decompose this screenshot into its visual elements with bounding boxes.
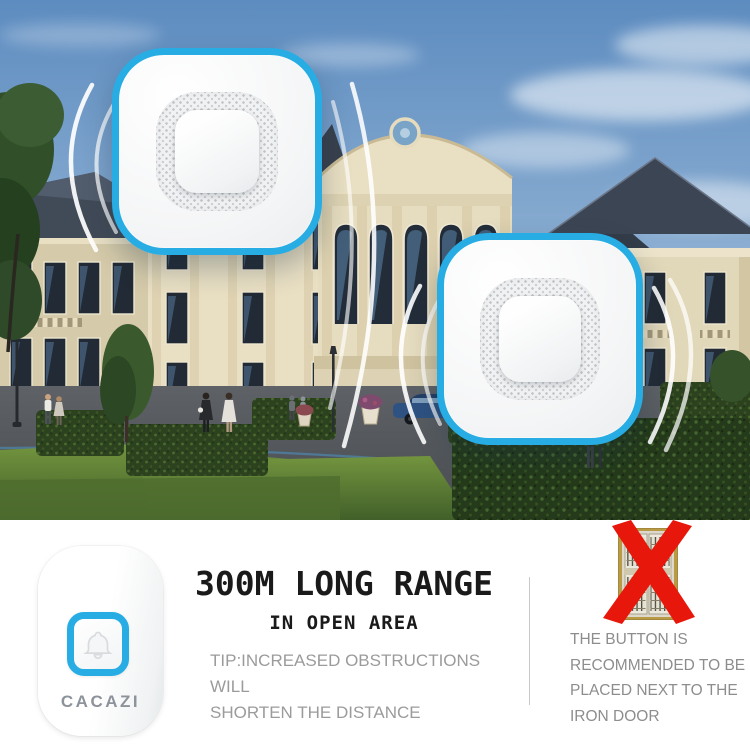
headline-block: 300M LONG RANGE IN OPEN AREA [168, 564, 520, 634]
warning-line: IRON DOOR [570, 704, 748, 730]
red-cross-icon [600, 516, 704, 628]
divider-line [529, 577, 530, 705]
headline-title: 300M LONG RANGE [168, 564, 520, 603]
product-banner: CACAZI 300M LONG RANGE IN OPEN AREA TIP:… [0, 0, 750, 750]
receiver-front-button [499, 296, 582, 381]
tip-text: TIP:INCREASED OBSTRUCTIONS WILL SHORTEN … [210, 648, 500, 726]
doorbell-transmitter: CACAZI [38, 546, 163, 736]
headline-subtitle: IN OPEN AREA [168, 612, 520, 634]
brand-logo: CACAZI [38, 692, 163, 712]
warning-line: PLACED NEXT TO THE [570, 678, 748, 704]
warning-line: RECOMMENDED TO BE [570, 653, 748, 679]
info-band: CACAZI 300M LONG RANGE IN OPEN AREA TIP:… [0, 520, 750, 750]
doorbell-receiver-2 [437, 233, 643, 445]
warning-line: THE BUTTON IS [570, 627, 748, 653]
bell-icon [80, 626, 116, 662]
warning-text: THE BUTTON IS RECOMMENDED TO BE PLACED N… [570, 627, 748, 729]
doorbell-receiver-1 [112, 48, 322, 255]
mansion-scene [0, 0, 750, 520]
mansion-photo [0, 0, 750, 520]
bell-button [67, 612, 129, 676]
tip-line: TIP:INCREASED OBSTRUCTIONS WILL [210, 648, 500, 700]
receiver-front-button [175, 110, 259, 193]
tip-line: SHORTEN THE DISTANCE [210, 700, 500, 726]
